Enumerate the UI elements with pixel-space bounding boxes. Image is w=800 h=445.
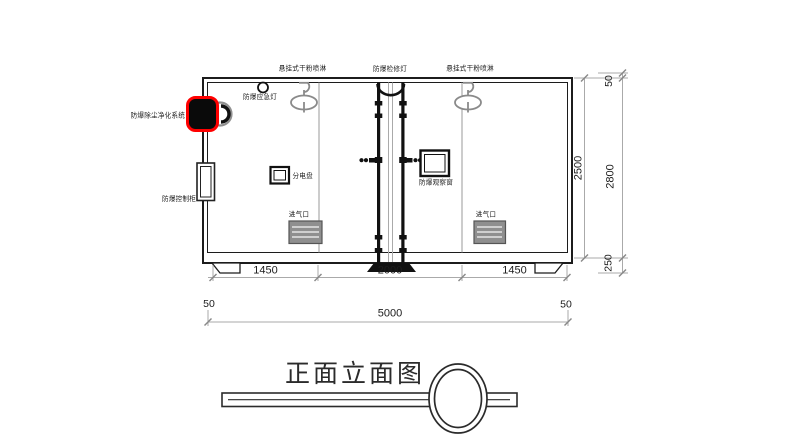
dimension-chain-width-total: 50 5000 50 (203, 298, 572, 326)
air-inlet-right (474, 221, 506, 244)
dim-50-roof: 50 (603, 75, 615, 87)
dim-2000-center: 2000 (378, 265, 402, 277)
emergency-light-icon (258, 83, 268, 93)
air-inlet-left-label: 进气口 (289, 210, 309, 219)
dim-5000-total: 5000 (378, 308, 402, 320)
purification-system-label: 防爆除尘净化系统 (131, 111, 186, 120)
emergency-light-label: 防爆应急灯 (243, 92, 277, 101)
purification-unit (188, 98, 232, 131)
air-inlet-right-label: 进气口 (476, 210, 496, 219)
inspection-light-label: 防爆检修灯 (373, 64, 407, 73)
dimension-chain-width-segments: 1450 2000 1450 (208, 265, 571, 282)
observation-window (421, 151, 450, 177)
dim-50-right: 50 (560, 299, 572, 311)
spray-left-label: 悬挂式干粉喷淋 (279, 64, 327, 73)
drawing-title: 正面立面图 (285, 360, 425, 388)
distribution-panel-label: 分电盘 (293, 171, 314, 180)
elevation-drawing-page: 悬挂式干粉喷淋 防爆检修灯 悬挂式干粉喷淋 防爆应急灯 防爆除尘净化系统 防爆控… (0, 0, 800, 445)
container-outline (203, 78, 572, 263)
section-marker-circle (429, 364, 487, 433)
observation-window-label: 防爆观察窗 (419, 178, 453, 187)
air-inlet-left (289, 221, 322, 244)
distribution-panel (271, 167, 290, 184)
spray-right-label: 悬挂式干粉喷淋 (446, 64, 494, 73)
dim-2500-body: 2500 (573, 156, 585, 180)
dim-250-base: 250 (603, 254, 615, 272)
dim-2800-total: 2800 (605, 164, 617, 188)
purification-unit-highlight (188, 98, 218, 131)
dim-1450-left: 1450 (253, 265, 277, 277)
control-cabinet (197, 163, 215, 201)
dimension-chain-height: 2500 50 2800 250 (573, 70, 629, 277)
control-cabinet-label: 防爆控制柜 (162, 194, 196, 203)
dim-50-left: 50 (203, 298, 215, 310)
dim-1450-right: 1450 (502, 265, 526, 277)
elevation-drawing: 悬挂式干粉喷淋 防爆检修灯 悬挂式干粉喷淋 防爆应急灯 防爆除尘净化系统 防爆控… (0, 0, 800, 445)
